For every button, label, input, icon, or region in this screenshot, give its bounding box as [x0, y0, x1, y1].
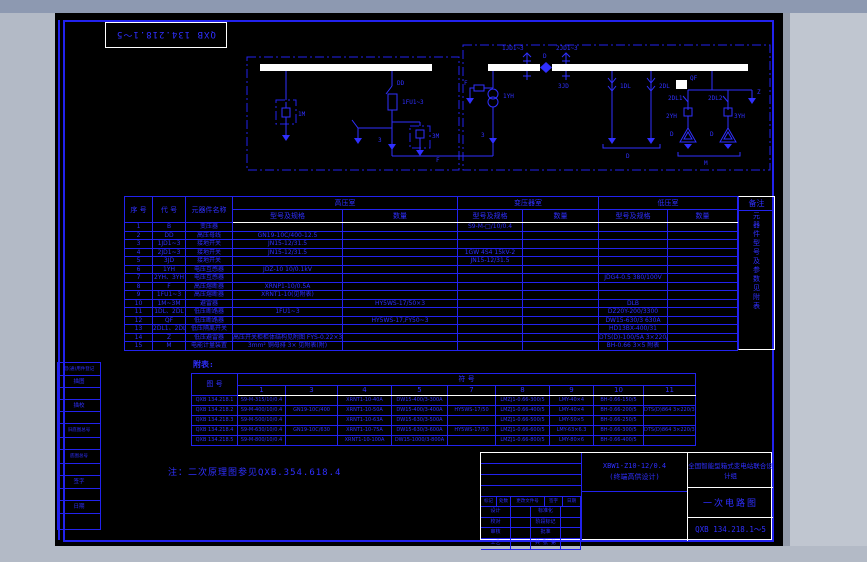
sign-design: 设计	[481, 507, 511, 518]
table-cell: 14	[125, 333, 153, 342]
table-cell	[668, 308, 738, 317]
table-cell: DW15-630/3 630A	[599, 316, 668, 325]
symbol-number-cell: 10	[594, 386, 644, 396]
table-row: 101M~3M避雷器HY5WS-17/50×3DLB	[125, 299, 738, 308]
sign-approve: 批准	[531, 528, 561, 539]
sign-cell	[561, 539, 581, 550]
table-cell: 10	[125, 299, 153, 308]
table-cell: 接地开关	[186, 240, 233, 249]
ground-arrow	[282, 135, 290, 141]
table-cell	[343, 265, 458, 274]
table-cell: Z	[153, 333, 186, 342]
sub-header-hv-model: 型号及规格	[233, 210, 343, 223]
label-f-pt: F	[464, 80, 468, 87]
attached-table: 图 号 符 号 13457891011 QXB 134.218.1S9-M-31…	[191, 373, 696, 446]
component-table-wrap: 序 号 代 号 元器件名称 高压室 变压器室 低压室 型号及规格 数量 型号及规…	[124, 196, 738, 351]
table-cell: S9-M-315/10/0.4	[238, 396, 286, 406]
table-cell	[343, 240, 458, 249]
rev-header-count: 处数	[497, 497, 511, 507]
section-header-transformer: 变压器室	[458, 197, 599, 210]
signature-grid: 设计 标准化 校对 阶段标记 审核 批准 工艺 共 张 第 张	[481, 507, 581, 550]
table-cell: QXB 134.218.1	[192, 396, 238, 406]
table-cell	[599, 282, 668, 291]
table-cell	[458, 299, 523, 308]
table-cell: F	[153, 282, 186, 291]
table-cell: 15	[125, 342, 153, 351]
table-cell: DZ20Y-200/3300	[599, 308, 668, 317]
remark-column: 备注 元器件型号及参数见附表	[738, 196, 775, 350]
table-cell	[523, 333, 599, 342]
table-cell: 4	[125, 248, 153, 257]
title-block-model-area: XBW1-Z10-12/0.4 (终端高供设计)	[581, 453, 687, 541]
table-row: 72YH、3YH电压互感器JDG4-0.5 380/100V	[125, 274, 738, 283]
table-cell: BH-0.66 3×5 附表	[599, 342, 668, 351]
table-cell: XRNT1-10-75A	[338, 426, 392, 436]
table-cell: 3mm² 铜母排 3× 见附表(附)	[233, 342, 343, 351]
table-row: 61YH电压互感器JDZ-10 10/0.1kV	[125, 265, 738, 274]
component-table-body: 1B变压器S9-M-□/10/0.42DD高压母线GN19-10C/400-12…	[125, 223, 738, 351]
label-2yh: 2YH	[666, 113, 677, 120]
table-cell: 低压隔离开关	[186, 325, 233, 334]
table-cell	[668, 248, 738, 257]
ground-arrow	[466, 98, 474, 104]
table-cell	[668, 231, 738, 240]
table-cell	[668, 342, 738, 351]
table-cell	[668, 282, 738, 291]
table-cell	[523, 308, 599, 317]
left-margin-spacer	[57, 514, 101, 530]
sign-standard: 标准化	[531, 507, 561, 518]
table-cell: LMZJ1-0.66-600/5	[496, 426, 550, 436]
table-cell: 电压互感器	[186, 265, 233, 274]
table-cell: LMZJ1-0.66-400/5	[496, 406, 550, 416]
label-d-bus: D	[543, 53, 547, 60]
z-arrow	[748, 98, 756, 104]
table-cell: HY5WS-17/50	[448, 426, 496, 436]
table-cell: 9	[125, 291, 153, 300]
table-cell	[668, 223, 738, 232]
table-cell: QXB 134.218.4	[192, 426, 238, 436]
table-cell: 接地开关	[186, 257, 233, 266]
table-cell: 电能计量装置	[186, 342, 233, 351]
table-cell: DW15-630/3-600A	[392, 426, 448, 436]
table-cell: BH-0.66-400/5	[594, 436, 644, 446]
sign-cell	[511, 539, 531, 550]
table-cell: HY5WS-17,FY50~3	[343, 316, 458, 325]
attached-number-row: 13457891011	[192, 386, 696, 396]
table-cell: BH-0.66-200/5	[594, 406, 644, 416]
sign-cell	[511, 528, 531, 539]
ground-arrow	[724, 144, 732, 149]
table-cell: 高压熔断器	[186, 291, 233, 300]
table-row: QXB 134.218.3S9-M-500/10/0.4XRNT1-10-63A…	[192, 416, 696, 426]
attached-doc-col-header: 图 号	[192, 374, 238, 396]
table-cell: JN15-12/31.5	[458, 257, 523, 266]
label-d-a: D	[670, 131, 674, 138]
label-1yh: 1YH	[503, 93, 514, 100]
table-cell: 12	[125, 316, 153, 325]
table-cell	[523, 282, 599, 291]
table-cell	[599, 265, 668, 274]
section-header-hv: 高压室	[233, 197, 458, 210]
sign-audit: 审核	[481, 528, 511, 539]
table-cell: 8	[125, 282, 153, 291]
symbol-number-cell: 11	[644, 386, 696, 396]
symbol-number-cell: 7	[448, 386, 496, 396]
attached-symbol-header: 符 号	[238, 374, 696, 386]
table-cell	[668, 333, 738, 342]
table-row: 111DL、2DL低压断路器1FU1~3DZ20Y-200/3300	[125, 308, 738, 317]
sign-cell	[511, 507, 531, 518]
secondary-schematic-note: 注：二次原理图参见QXB.354.618.4	[168, 465, 341, 478]
table-cell: 1	[125, 223, 153, 232]
table-cell	[523, 291, 599, 300]
table-cell: LMY-63×6.3	[550, 426, 594, 436]
paper-right-margin	[783, 13, 867, 546]
table-cell: GN19-10C/400	[286, 406, 338, 416]
left-margin-spacer	[57, 489, 101, 501]
ground-arrow	[354, 138, 362, 144]
table-cell: JDG4-0.5 380/100V	[599, 274, 668, 283]
revision-header-row: 标记 处数 更改文件号 签字 日期	[481, 497, 581, 507]
table-cell: S9-M-400/10/0.4	[238, 406, 286, 416]
table-cell: 电压互感器	[186, 274, 233, 283]
label-1jd: 1JD1~3	[502, 45, 524, 52]
sign-cell	[561, 518, 581, 529]
table-cell: QXB 134.218.5	[192, 436, 238, 446]
table-cell	[599, 291, 668, 300]
table-cell: 1FU1~3	[233, 308, 343, 317]
table-cell	[644, 396, 696, 406]
table-cell: S9-M-□/10/0.4	[458, 223, 523, 232]
table-cell: DD	[153, 231, 186, 240]
cad-viewport: QXB 134.218.1～5 1M DD 1FU1~3 3M 3 F D	[0, 0, 867, 562]
table-row: 31JD1~3接地开关JN15-12/31.5	[125, 240, 738, 249]
doc-number-inverted: QXB 134.218.1～5	[116, 29, 216, 42]
rev-header-file: 更改文件号	[511, 497, 545, 507]
table-row: 2DD高压母线GN19-10C/400-12.5	[125, 231, 738, 240]
symbol-number-cell: 4	[338, 386, 392, 396]
ground-arrow	[416, 150, 424, 156]
table-cell	[286, 396, 338, 406]
table-cell	[644, 416, 696, 426]
table-cell	[343, 282, 458, 291]
table-cell	[233, 274, 343, 283]
table-cell: S9-M-630/10/0.4	[238, 426, 286, 436]
table-cell	[343, 308, 458, 317]
table-row: 12QF低压断路器HY5WS-17,FY50~3DW15-630/3 630A	[125, 316, 738, 325]
table-row: 8F高压熔断器XRNP1-10/0.5A	[125, 282, 738, 291]
hv-compartment-box	[247, 57, 459, 170]
table-cell	[644, 436, 696, 446]
table-cell: 1FU1~3	[153, 291, 186, 300]
table-cell: 1GW 4S4 15kV-2	[458, 248, 523, 257]
table-row: 42JD1~3接地开关JN15-12/31.51GW 4S4 15kV-2	[125, 248, 738, 257]
sign-cell	[561, 528, 581, 539]
table-cell: JN15-12/31.5	[233, 240, 343, 249]
table-cell	[448, 436, 496, 446]
sign-cell	[511, 518, 531, 529]
label-d-b: D	[710, 131, 714, 138]
table-cell	[458, 316, 523, 325]
table-cell	[599, 257, 668, 266]
label-2dl2: 2DL2	[708, 95, 723, 102]
flow-arrow	[388, 144, 396, 150]
table-row: 15M电能计量装置3mm² 铜母排 3× 见附表(附)BH-0.66 3×5 附…	[125, 342, 738, 351]
table-cell	[523, 223, 599, 232]
table-row: 132DL1、2DL2低压隔离开关HD13BX-400/31	[125, 325, 738, 334]
col-header-no: 序 号	[125, 197, 153, 223]
table-cell: LMY-50×5	[550, 416, 594, 426]
table-row: QXB 134.218.5S9-M-800/10/0.4XRNT1-10-100…	[192, 436, 696, 446]
table-cell	[523, 342, 599, 351]
label-qf: QF	[690, 75, 698, 82]
table-cell	[286, 436, 338, 446]
table-cell: XRNT1-10-100A	[338, 436, 392, 446]
table-cell: HY5WS-17/50	[448, 406, 496, 416]
table-cell	[458, 274, 523, 283]
table-cell	[668, 291, 738, 300]
table-cell: LMY-80×6	[550, 436, 594, 446]
label-2dl1: 2DL1	[668, 95, 683, 102]
table-cell	[233, 223, 343, 232]
table-cell: 2	[125, 231, 153, 240]
component-table: 序 号 代 号 元器件名称 高压室 变压器室 低压室 型号及规格 数量 型号及规…	[124, 196, 738, 351]
rev-header-mark: 标记	[481, 497, 497, 507]
table-cell	[458, 240, 523, 249]
table-cell	[668, 325, 738, 334]
table-cell	[448, 396, 496, 406]
label-3-left: 3	[378, 137, 382, 144]
table-cell: DTS(D)864 3×220/380V	[644, 426, 696, 436]
table-cell: 2JD1~3	[153, 248, 186, 257]
symbol-number-cell: 5	[392, 386, 448, 396]
label-m-bottom: M	[704, 160, 708, 167]
label-3-right: 3	[481, 132, 485, 139]
table-cell: LMY-40×4	[550, 396, 594, 406]
sub-header-tr-qty: 数量	[523, 210, 599, 223]
table-cell: 低压避雷器	[186, 333, 233, 342]
remark-vertical-text: 元器件型号及参数见附表	[752, 212, 762, 311]
label-3m: 3M	[432, 133, 440, 140]
table-cell: HD13BX-400/31	[599, 325, 668, 334]
table-cell	[448, 416, 496, 426]
table-row: 1B变压器S9-M-□/10/0.4	[125, 223, 738, 232]
title-block-revision-area: 标记 处数 更改文件号 签字 日期 设计 标准化 校对 阶段标记 审核 批准 工…	[481, 453, 581, 541]
table-cell	[668, 274, 738, 283]
symbol-number-cell: 3	[286, 386, 338, 396]
attached-table-label: 附表:	[193, 359, 214, 370]
left-margin-item: 借(通)用件登记	[57, 362, 101, 376]
revision-row	[481, 453, 581, 464]
left-margin-item: 描图	[57, 376, 101, 388]
label-1dl: 1DL	[620, 83, 631, 90]
table-cell: XRNT1-10(见附表)	[233, 291, 343, 300]
qf-breaker-symbol	[676, 80, 687, 89]
table-cell	[523, 316, 599, 325]
table-cell	[523, 299, 599, 308]
table-cell	[599, 240, 668, 249]
label-dd: DD	[397, 80, 405, 87]
revision-empty-rows	[481, 453, 581, 497]
table-cell	[523, 274, 599, 283]
table-cell: M	[153, 342, 186, 351]
revision-row	[481, 464, 581, 475]
section-header-lv: 低压室	[599, 197, 738, 210]
revision-row	[481, 486, 581, 497]
table-cell	[599, 223, 668, 232]
label-z: Z	[757, 89, 761, 96]
rev-header-sign: 签字	[545, 497, 563, 507]
table-cell: LMZJ1-0.66-300/5	[496, 396, 550, 406]
left-margin-spacer	[57, 438, 101, 450]
drawing-number: QXB 134.218.1～5	[688, 518, 773, 541]
table-cell: 3JD	[153, 257, 186, 266]
table-cell: DW15-400/3-300A	[392, 396, 448, 406]
table-cell: S9-M-500/10/0.4	[238, 416, 286, 426]
table-row: QXB 134.218.4S9-M-630/10/0.4GN19-10C/630…	[192, 426, 696, 436]
title-block: 标记 处数 更改文件号 签字 日期 设计 标准化 校对 阶段标记 审核 批准 工…	[480, 452, 772, 540]
table-cell: 低压断路器	[186, 308, 233, 317]
table-cell: DLB	[599, 299, 668, 308]
table-cell	[343, 248, 458, 257]
title-block-right-area: 全国智能型箱式变电站联合设计组 一次电路图 QXB 134.218.1～5	[687, 453, 773, 541]
table-cell	[233, 299, 343, 308]
table-cell: 1JD1~3	[153, 240, 186, 249]
sub-header-tr-model: 型号及规格	[458, 210, 523, 223]
label-1fu: 1FU1~3	[402, 99, 424, 106]
table-cell: 高压母线	[186, 231, 233, 240]
symbol-number-cell: 9	[550, 386, 594, 396]
table-cell	[523, 265, 599, 274]
table-cell: GN19-10C/630	[286, 426, 338, 436]
revision-row	[481, 475, 581, 486]
left-busbar	[260, 64, 432, 71]
table-cell: 高压开关柜柜体结构见附图 FYS-0.22×3	[233, 333, 343, 342]
table-cell: QXB 134.218.3	[192, 416, 238, 426]
feeder-arrow	[647, 138, 655, 144]
attached-table-body: QXB 134.218.1S9-M-315/10/0.4XRNT1-10-40A…	[192, 396, 696, 446]
feeder-arrow	[608, 138, 616, 144]
table-cell: B	[153, 223, 186, 232]
table-cell: 接地开关	[186, 248, 233, 257]
table-cell	[458, 308, 523, 317]
table-row: 14Z低压避雷器高压开关柜柜体结构见附图 FYS-0.22×3DTS(D)-10…	[125, 333, 738, 342]
left-margin-item: 描校	[57, 400, 101, 412]
table-cell: 13	[125, 325, 153, 334]
left-margin-item: 底图总号	[57, 450, 101, 464]
sign-stage: 阶段标记	[531, 518, 561, 529]
table-cell	[343, 231, 458, 240]
table-cell	[458, 333, 523, 342]
table-row: QXB 134.218.1S9-M-315/10/0.4XRNT1-10-40A…	[192, 396, 696, 406]
table-cell	[668, 240, 738, 249]
table-cell	[458, 282, 523, 291]
table-cell	[599, 231, 668, 240]
table-cell: DTS(D)864 3×220/380V	[644, 406, 696, 416]
symbol-number-cell: 1	[238, 386, 286, 396]
table-cell	[668, 316, 738, 325]
table-cell: 2YH、3YH	[153, 274, 186, 283]
table-cell: LMY-40×4	[550, 406, 594, 416]
table-cell	[233, 325, 343, 334]
table-cell: JN15-12/31.5	[233, 248, 343, 257]
table-cell: 1DL、2DL	[153, 308, 186, 317]
table-cell: XRNT1-10-50A	[338, 406, 392, 416]
table-cell: S9-M-800/10/0.4	[238, 436, 286, 446]
label-3yh: 3YH	[734, 113, 745, 120]
attached-table-wrap: 图 号 符 号 13457891011 QXB 134.218.1S9-M-31…	[191, 373, 696, 446]
table-cell	[343, 274, 458, 283]
table-cell	[343, 333, 458, 342]
table-cell: QF	[153, 316, 186, 325]
paper-left-margin	[0, 13, 55, 546]
sub-header-lv-model: 型号及规格	[599, 210, 668, 223]
paper-bottom-margin	[0, 546, 867, 562]
table-cell: 3	[125, 240, 153, 249]
product-model: XBW1-Z10-12/0.4	[603, 462, 666, 470]
table-cell	[523, 231, 599, 240]
design-organization: 全国智能型箱式变电站联合设计组	[688, 453, 773, 488]
table-cell: HY5WS-17/50×3	[343, 299, 458, 308]
table-cell: DTS(D)-100/5A 3×220/380V	[599, 333, 668, 342]
table-cell	[668, 265, 738, 274]
one-line-schematic: 1M DD 1FU1~3 3M 3 F D 1JD1~3 2JD1~3 3JD …	[240, 38, 775, 178]
table-cell: 2DL1、2DL2	[153, 325, 186, 334]
table-cell	[343, 325, 458, 334]
remark-header: 备注	[739, 197, 774, 211]
label-f-left: F	[436, 157, 440, 164]
table-cell	[523, 248, 599, 257]
table-cell	[343, 223, 458, 232]
table-cell: 低压断路器	[186, 316, 233, 325]
sign-cell	[561, 507, 581, 518]
table-cell	[458, 231, 523, 240]
window-top-bar	[0, 0, 867, 13]
table-cell	[523, 325, 599, 334]
table-cell: LMZJ1-0.66-500/5	[496, 416, 550, 426]
drawing-title: 一次电路图	[688, 488, 773, 518]
table-row: 91FU1~3高压熔断器XRNT1-10(见附表)	[125, 291, 738, 300]
left-margin-item: 签字	[57, 476, 101, 489]
table-cell: 1M~3M	[153, 299, 186, 308]
right-busbar	[488, 64, 748, 71]
ground-arrow	[684, 144, 692, 149]
table-cell: BH-0.66-300/5	[594, 426, 644, 436]
table-cell: 7	[125, 274, 153, 283]
table-row: 53JD接地开关JN15-12/31.5	[125, 257, 738, 266]
table-cell: LMZJ1-0.66-800/5	[496, 436, 550, 446]
label-2dl: 2DL	[659, 83, 670, 90]
table-cell: XRNP1-10/0.5A	[233, 282, 343, 291]
label-1m: 1M	[298, 111, 306, 118]
table-cell	[668, 257, 738, 266]
table-cell	[233, 316, 343, 325]
left-margin-spacer	[57, 412, 101, 424]
table-cell	[233, 257, 343, 266]
table-cell: GN19-10C/400-12.5	[233, 231, 343, 240]
table-cell: 5	[125, 257, 153, 266]
col-header-code: 代 号	[153, 197, 186, 223]
table-row: QXB 134.218.2S9-M-400/10/0.4GN19-10C/400…	[192, 406, 696, 416]
table-cell: XRNT1-10-40A	[338, 396, 392, 406]
table-cell	[343, 291, 458, 300]
table-cell: DW15-1000/3-800A	[392, 436, 448, 446]
col-header-name: 元器件名称	[186, 197, 233, 223]
label-3jd: 3JD	[558, 83, 569, 90]
table-cell	[343, 342, 458, 351]
doc-number-box: QXB 134.218.1～5	[105, 22, 227, 48]
